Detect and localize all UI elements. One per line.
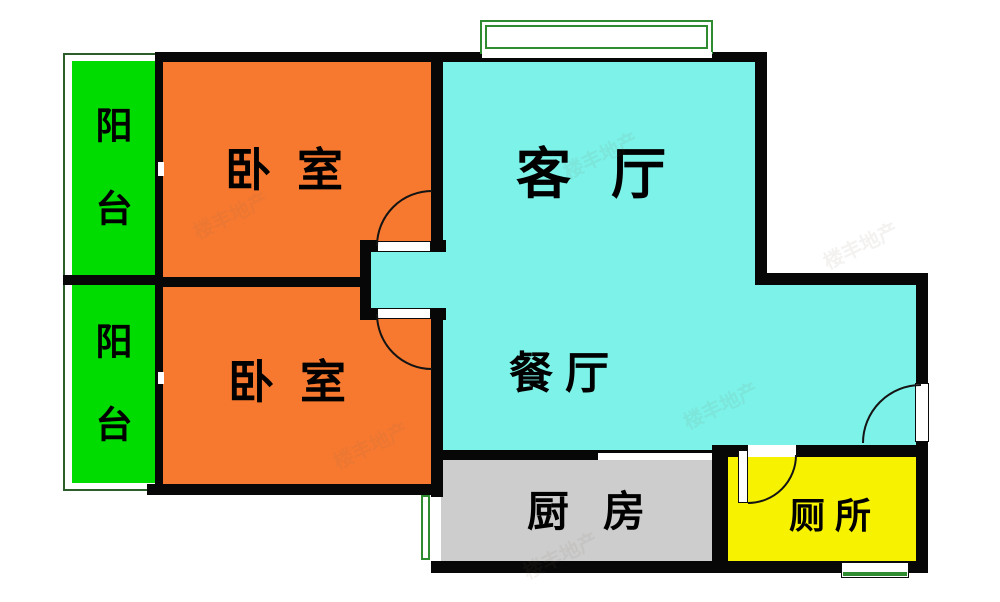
room-label-bedroom-south: 卧室 [228, 359, 372, 405]
wall-kitchen-toilet-divider [712, 445, 728, 573]
door-entry [915, 383, 929, 442]
wall-bedroom-south-bottom [147, 484, 443, 495]
door-bedroom-north [377, 241, 431, 252]
wall-bedroom-divider [155, 277, 371, 287]
balcony-north-door-gap [156, 162, 164, 176]
room-label-balcony-north: 阳台 [92, 106, 129, 272]
wall-right-upper [755, 52, 767, 285]
window-toilet-south [841, 562, 909, 578]
door-bedroom-south [377, 308, 431, 319]
wall-balcony-divider [63, 275, 157, 285]
window-toilet-south-sill [843, 572, 907, 576]
wall-bed-south-door-stub [360, 308, 377, 320]
room-label-dining-room: 餐厅 [509, 352, 621, 396]
wall-bedroom-south-right [431, 318, 443, 497]
wall-bed-north-door-corner [431, 240, 446, 252]
window-north-inner-frame [485, 25, 708, 49]
room-label-bedroom-north: 卧室 [225, 147, 369, 193]
door-toilet [738, 450, 748, 503]
window-north [480, 20, 713, 54]
room-label-kitchen: 厨房 [527, 491, 679, 533]
wall-extension-top [755, 273, 928, 285]
door-toilet-opening [748, 445, 796, 457]
wall-bedroom-north-right [431, 52, 443, 242]
wall-balcony-right [155, 52, 163, 484]
window-north-wall-opening [482, 52, 712, 60]
room-label-living-room: 客厅 [516, 147, 706, 202]
floorplan-canvas: 阳台 阳台 卧室 卧室 客厅 餐厅 厨房 厕所 楼丰地产 楼丰地产 楼丰地产 楼… [0, 0, 1000, 602]
window-kitchen-west [421, 495, 430, 560]
balcony-south-door-gap [156, 372, 164, 384]
room-label-balcony-south: 阳台 [92, 322, 129, 488]
room-label-toilet: 厕所 [789, 498, 881, 534]
hallway [371, 252, 443, 308]
watermark: 楼丰地产 [818, 214, 903, 275]
room-dining-extension [757, 285, 917, 445]
wall-kitchen-top [431, 450, 598, 460]
kitchen-passage-opening [598, 453, 712, 460]
